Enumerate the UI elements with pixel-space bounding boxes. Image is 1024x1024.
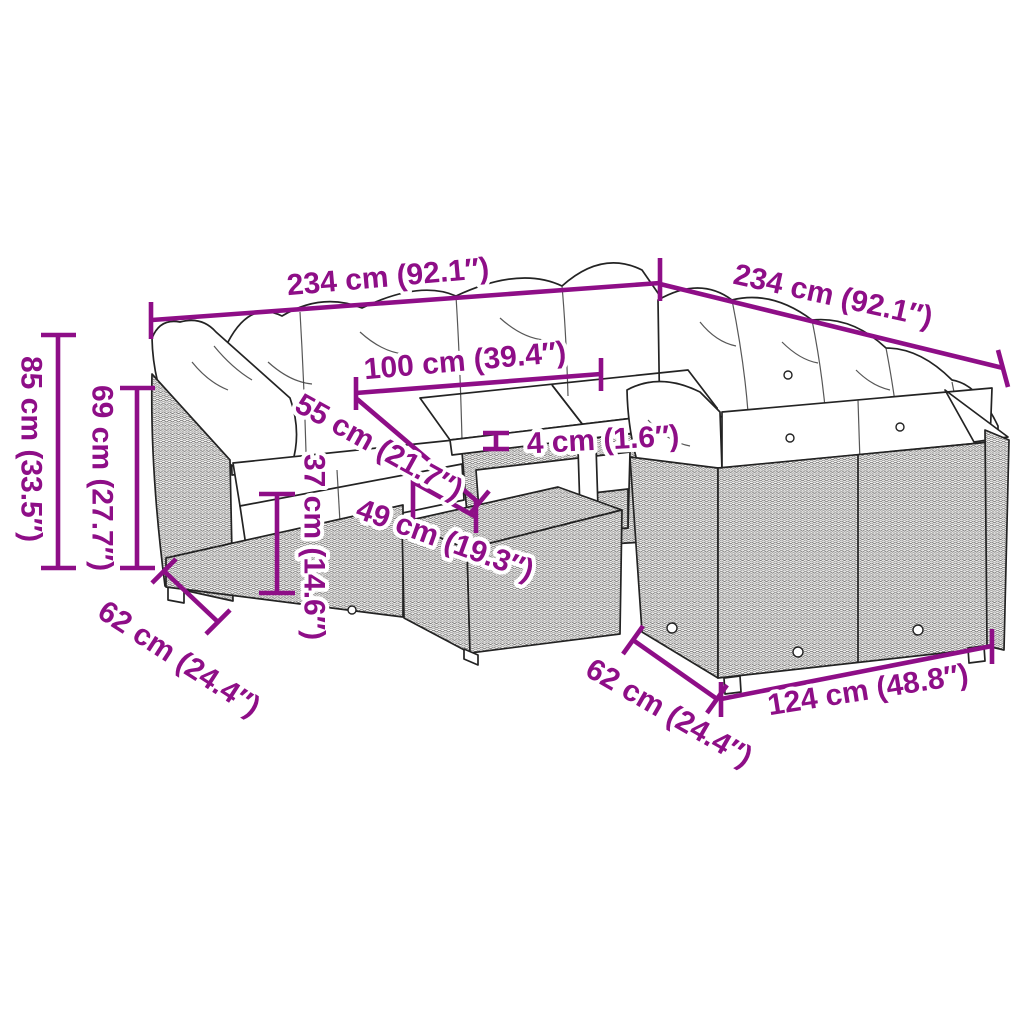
label-depth-left: 62 cm (24.4″) — [92, 594, 266, 723]
diagram-canvas: 234 cm (92.1″) 234 cm (92.1″) 85 cm (33.… — [0, 0, 1024, 1024]
right-arm-panel — [985, 430, 1009, 650]
furniture-illustration — [152, 263, 1009, 694]
label-seat-height: 37 cm (14.6″) — [298, 454, 331, 640]
label-total-height: 85 cm (33.5″) — [15, 356, 48, 542]
right-base-front-face — [718, 442, 990, 678]
label-back-height: 69 cm (27.7″) — [86, 385, 119, 571]
dim-line-back-height — [120, 388, 155, 568]
dimension-diagram: 234 cm (92.1″) 234 cm (92.1″) 85 cm (33.… — [0, 0, 1024, 1024]
